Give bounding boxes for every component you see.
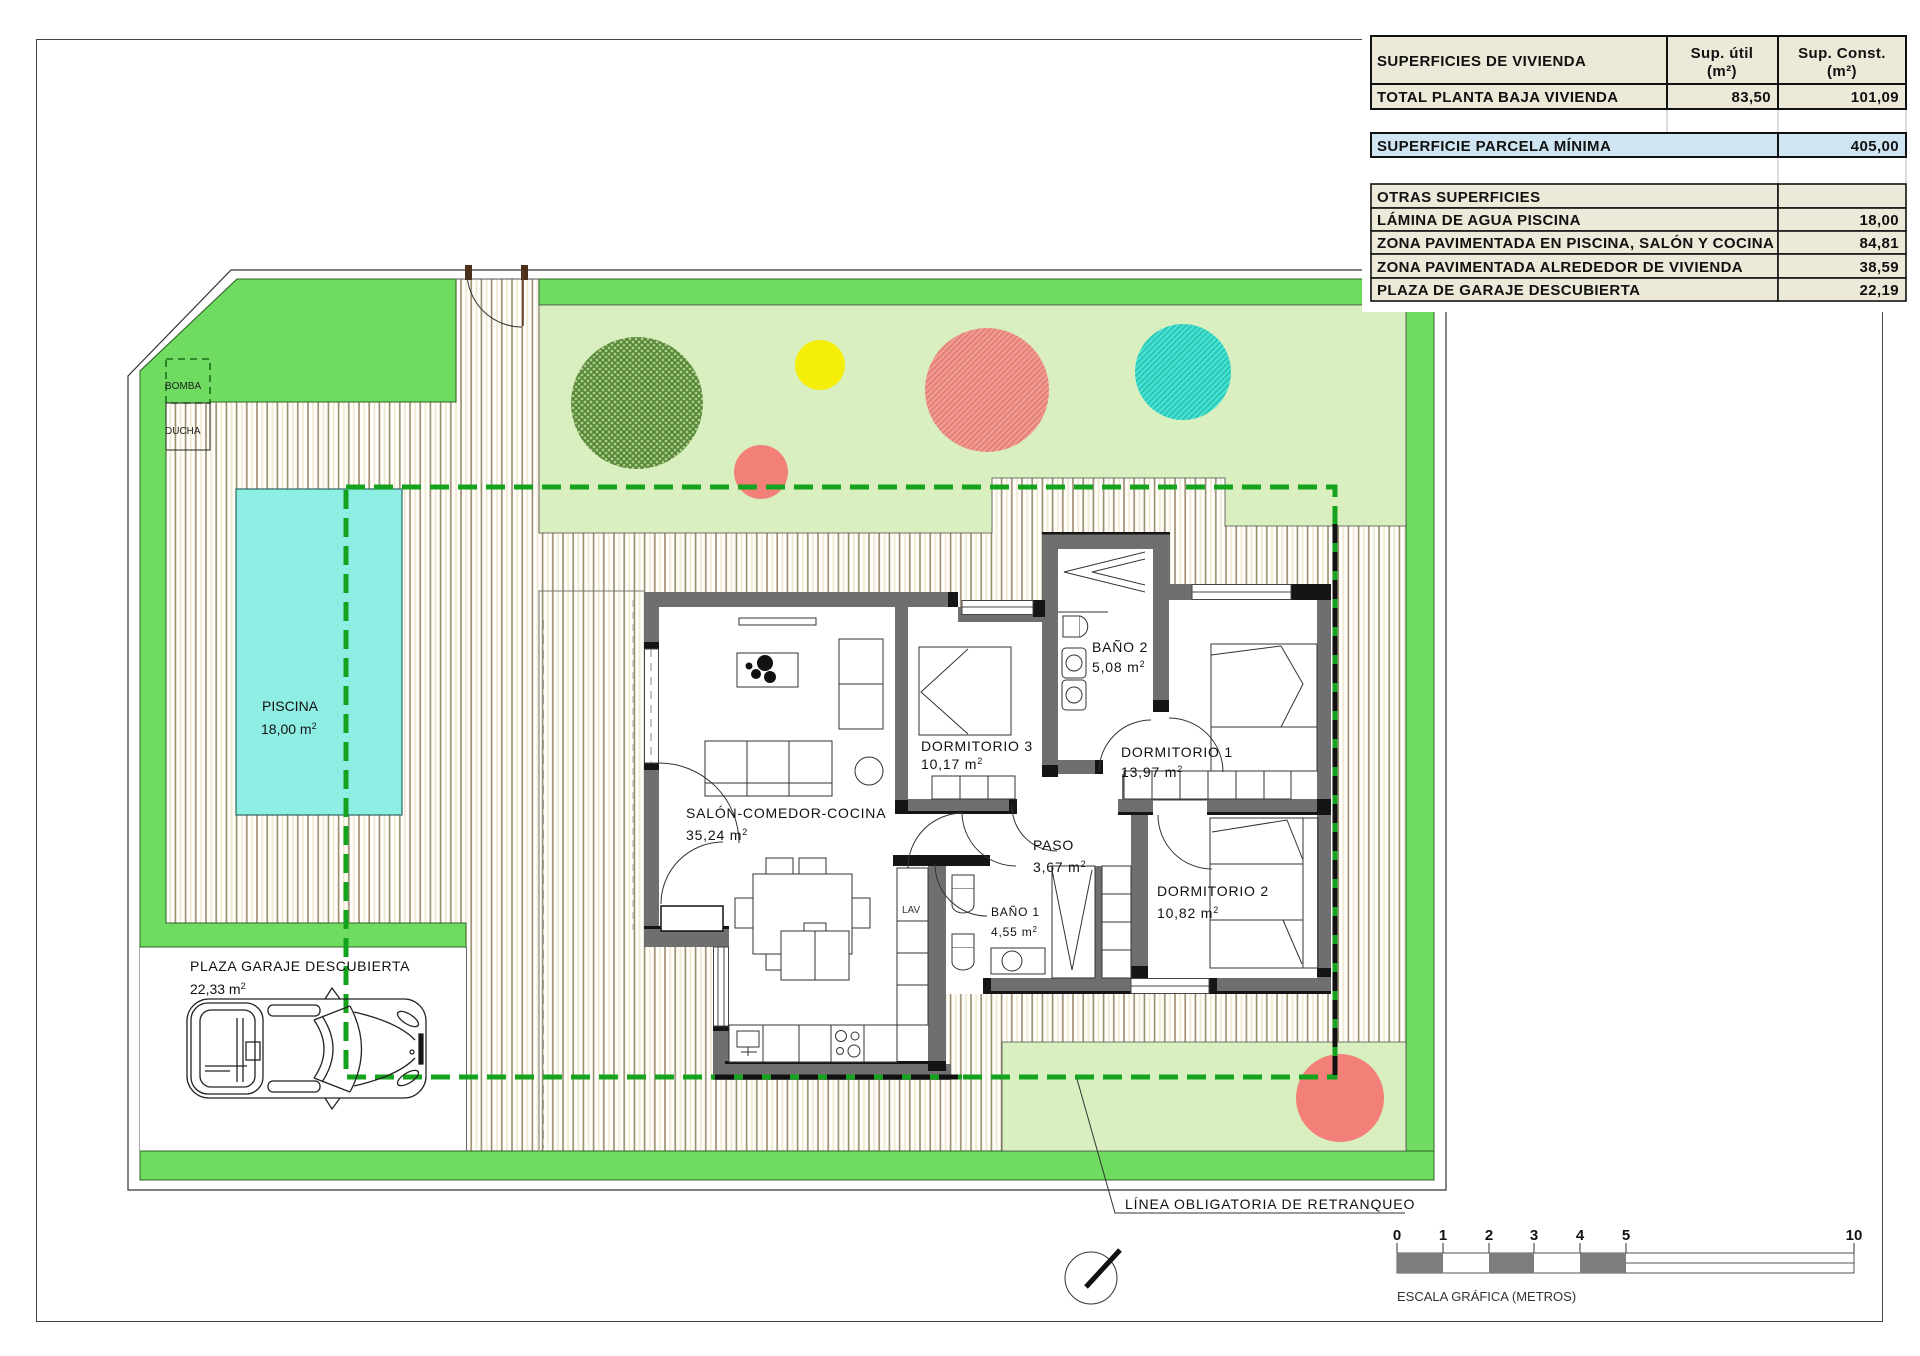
svg-text:2: 2 [1485,1227,1493,1244]
svg-text:DUCHA: DUCHA [165,426,201,437]
svg-text:4: 4 [1576,1227,1585,1244]
svg-text:(m²): (m²) [1827,63,1857,80]
svg-text:5,08 m2: 5,08 m2 [1092,659,1145,675]
svg-text:BOMBA: BOMBA [165,381,201,392]
svg-text:13,97 m2: 13,97 m2 [1121,764,1183,780]
svg-text:3: 3 [1530,1227,1538,1244]
svg-text:ZONA PAVIMENTADA ALREDEDOR DE: ZONA PAVIMENTADA ALREDEDOR DE VIVIENDA [1377,259,1743,276]
svg-text:83,50: 83,50 [1731,89,1771,106]
svg-text:LÁMINA DE AGUA PISCINA: LÁMINA DE AGUA PISCINA [1377,212,1581,229]
svg-text:10,17 m2: 10,17 m2 [921,756,983,772]
svg-text:4,55 m2: 4,55 m2 [991,925,1038,939]
svg-text:0: 0 [1393,1227,1401,1244]
svg-text:PISCINA: PISCINA [262,698,319,714]
svg-text:18,00 m2: 18,00 m2 [261,721,317,737]
svg-text:Sup. útil: Sup. útil [1691,45,1754,62]
svg-text:SALÓN-COMEDOR-COCINA: SALÓN-COMEDOR-COCINA [686,805,886,821]
svg-text:BAÑO 2: BAÑO 2 [1092,639,1148,655]
svg-text:35,24 m2: 35,24 m2 [686,827,748,843]
svg-text:22,33 m2: 22,33 m2 [190,981,246,997]
svg-text:5: 5 [1622,1227,1630,1244]
svg-text:PLAZA DE GARAJE DESCUBIERTA: PLAZA DE GARAJE DESCUBIERTA [1377,282,1640,299]
svg-text:DORMITORIO 2: DORMITORIO 2 [1157,883,1269,899]
svg-text:LAV: LAV [902,905,920,916]
svg-text:101,09: 101,09 [1851,89,1899,106]
svg-text:22,19: 22,19 [1859,282,1899,299]
svg-text:PASO: PASO [1033,837,1074,853]
svg-text:18,00: 18,00 [1859,212,1899,229]
svg-text:DORMITORIO 1: DORMITORIO 1 [1121,744,1233,760]
svg-text:DORMITORIO 3: DORMITORIO 3 [921,738,1033,754]
svg-text:(m²): (m²) [1707,63,1737,80]
svg-text:ESCALA GRÁFICA (METROS): ESCALA GRÁFICA (METROS) [1397,1289,1576,1304]
svg-text:10,82 m2: 10,82 m2 [1157,905,1219,921]
svg-text:SUPERFICIE PARCELA MÍNIMA: SUPERFICIE PARCELA MÍNIMA [1377,138,1611,155]
svg-text:10: 10 [1846,1227,1863,1244]
svg-text:38,59: 38,59 [1859,259,1899,276]
svg-text:LÍNEA OBLIGATORIA DE RETRANQUE: LÍNEA OBLIGATORIA DE RETRANQUEO [1125,1196,1415,1212]
svg-text:Sup. Const.: Sup. Const. [1798,45,1886,62]
svg-text:SUPERFICIES DE VIVIENDA: SUPERFICIES DE VIVIENDA [1377,53,1586,70]
svg-text:3,67 m2: 3,67 m2 [1033,859,1086,875]
svg-text:405,00: 405,00 [1851,138,1899,155]
svg-text:OTRAS SUPERFICIES: OTRAS SUPERFICIES [1377,189,1541,206]
svg-text:84,81: 84,81 [1859,235,1899,252]
svg-text:1: 1 [1439,1227,1447,1244]
svg-text:ZONA PAVIMENTADA EN PISCINA, S: ZONA PAVIMENTADA EN PISCINA, SALÓN Y COC… [1377,234,1774,252]
svg-text:BAÑO 1: BAÑO 1 [991,905,1040,919]
svg-text:PLAZA GARAJE DESCUBIERTA: PLAZA GARAJE DESCUBIERTA [190,958,410,974]
svg-text:TOTAL PLANTA BAJA VIVIENDA: TOTAL PLANTA BAJA VIVIENDA [1377,89,1619,106]
